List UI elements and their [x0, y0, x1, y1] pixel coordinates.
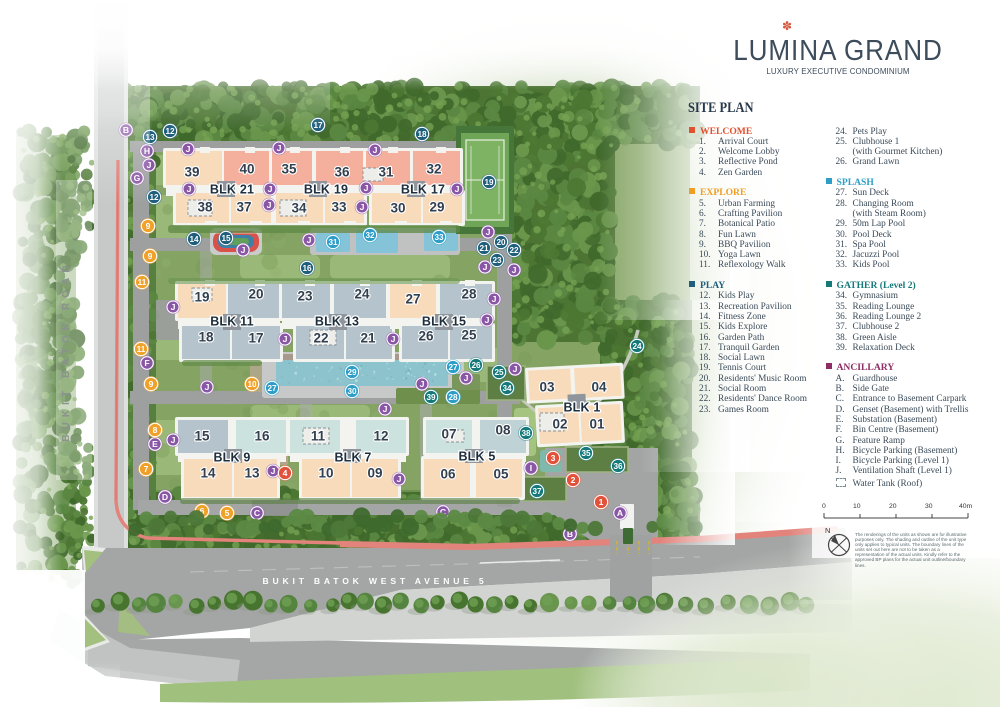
svg-text:23: 23	[492, 256, 502, 265]
svg-text:BLK 17: BLK 17	[401, 183, 445, 197]
svg-text:39: 39	[426, 393, 436, 402]
svg-text:BLK 13: BLK 13	[315, 315, 359, 329]
svg-text:J: J	[271, 466, 276, 476]
svg-text:40: 40	[239, 162, 254, 177]
svg-text:J: J	[186, 144, 191, 154]
svg-text:2: 2	[571, 475, 576, 485]
svg-text:J: J	[268, 184, 273, 194]
svg-text:23: 23	[297, 289, 313, 304]
svg-text:J: J	[397, 474, 402, 484]
svg-text:BLK 7: BLK 7	[334, 451, 371, 465]
svg-text:17: 17	[248, 331, 263, 346]
svg-text:5: 5	[225, 508, 230, 518]
svg-text:09: 09	[367, 466, 382, 481]
svg-text:16: 16	[302, 264, 312, 273]
svg-text:BLK 9: BLK 9	[213, 451, 250, 465]
svg-text:BLK 1: BLK 1	[563, 401, 600, 415]
svg-text:35: 35	[581, 449, 591, 458]
svg-text:08: 08	[495, 423, 511, 438]
svg-text:D: D	[162, 492, 168, 502]
svg-text:30: 30	[390, 201, 405, 216]
svg-text:30: 30	[347, 387, 357, 396]
svg-text:J: J	[307, 235, 312, 245]
svg-text:27: 27	[267, 384, 277, 393]
svg-text:J: J	[364, 183, 369, 193]
svg-text:BLK 21: BLK 21	[210, 183, 254, 197]
svg-text:14: 14	[189, 235, 199, 244]
svg-text:02: 02	[552, 417, 567, 432]
svg-text:33: 33	[434, 233, 444, 242]
svg-text:32: 32	[365, 231, 375, 240]
svg-text:3: 3	[551, 453, 556, 463]
svg-text:24: 24	[354, 287, 370, 302]
svg-text:21: 21	[360, 331, 376, 346]
svg-text:J: J	[420, 379, 425, 389]
svg-text:20: 20	[496, 238, 506, 247]
svg-text:19: 19	[194, 290, 209, 305]
svg-text:32: 32	[426, 162, 441, 177]
svg-text:11: 11	[311, 429, 326, 444]
svg-text:07: 07	[441, 427, 456, 442]
svg-text:05: 05	[493, 467, 509, 482]
svg-text:16: 16	[254, 429, 270, 444]
svg-text:22: 22	[313, 331, 328, 346]
svg-text:35: 35	[281, 162, 297, 177]
svg-text:BLK 5: BLK 5	[458, 450, 495, 464]
svg-text:J: J	[360, 202, 365, 212]
svg-text:15: 15	[194, 429, 210, 444]
svg-text:12: 12	[149, 193, 159, 202]
svg-text:J: J	[513, 364, 518, 374]
svg-text:J: J	[283, 334, 288, 344]
svg-text:E: E	[152, 439, 158, 449]
svg-text:J: J	[492, 294, 497, 304]
svg-text:27: 27	[405, 292, 420, 307]
svg-text:11: 11	[138, 278, 147, 287]
svg-text:18: 18	[417, 130, 427, 139]
svg-text:J: J	[171, 302, 176, 312]
svg-text:J: J	[512, 265, 517, 275]
svg-text:J: J	[383, 404, 388, 414]
svg-text:I: I	[530, 463, 532, 473]
svg-text:38: 38	[197, 200, 213, 215]
svg-text:F: F	[144, 358, 149, 368]
svg-text:BLK 11: BLK 11	[210, 315, 254, 329]
svg-text:7: 7	[144, 464, 149, 474]
svg-text:9: 9	[146, 221, 151, 231]
svg-text:19: 19	[484, 178, 494, 187]
svg-text:25: 25	[461, 328, 477, 343]
svg-text:9: 9	[149, 379, 154, 389]
svg-text:06: 06	[440, 467, 456, 482]
svg-text:36: 36	[334, 165, 350, 180]
svg-text:14: 14	[200, 466, 216, 481]
svg-text:1: 1	[599, 497, 604, 507]
svg-text:BUKIT BATOK WEST AVENUE 5: BUKIT BATOK WEST AVENUE 5	[262, 576, 487, 586]
svg-text:13: 13	[244, 466, 260, 481]
svg-text:J: J	[187, 184, 192, 194]
svg-text:J: J	[267, 200, 272, 210]
svg-text:04: 04	[591, 380, 607, 395]
svg-text:29: 29	[347, 368, 357, 377]
svg-text:8: 8	[153, 425, 158, 435]
svg-text:10: 10	[247, 380, 257, 389]
svg-text:29: 29	[429, 200, 444, 215]
svg-text:20: 20	[248, 287, 263, 302]
svg-text:27: 27	[448, 363, 458, 372]
svg-text:25: 25	[494, 368, 504, 377]
svg-text:J: J	[455, 184, 460, 194]
svg-text:J: J	[373, 145, 378, 155]
svg-text:22: 22	[509, 246, 519, 255]
svg-text:37: 37	[236, 200, 251, 215]
svg-text:J: J	[485, 315, 490, 325]
svg-text:11: 11	[137, 345, 146, 354]
svg-text:J: J	[483, 262, 488, 272]
svg-text:J: J	[241, 245, 246, 255]
svg-text:26: 26	[471, 361, 481, 370]
svg-text:33: 33	[331, 200, 347, 215]
svg-text:A: A	[617, 508, 623, 518]
svg-text:4: 4	[283, 468, 288, 478]
svg-text:34: 34	[291, 201, 307, 216]
svg-text:39: 39	[184, 165, 199, 180]
svg-text:38: 38	[521, 429, 531, 438]
svg-text:10: 10	[318, 466, 333, 481]
svg-text:J: J	[464, 373, 469, 383]
svg-text:C: C	[254, 508, 260, 518]
svg-text:9: 9	[148, 251, 153, 261]
svg-text:BLK 19: BLK 19	[304, 183, 348, 197]
svg-text:31: 31	[378, 165, 394, 180]
svg-text:34: 34	[502, 384, 512, 393]
svg-text:18: 18	[198, 330, 214, 345]
svg-text:12: 12	[373, 429, 388, 444]
svg-text:28: 28	[448, 393, 458, 402]
svg-text:BUKIT BATOK ROAD: BUKIT BATOK ROAD	[61, 260, 72, 441]
svg-text:J: J	[171, 435, 176, 445]
svg-text:03: 03	[539, 380, 555, 395]
svg-text:28: 28	[461, 287, 477, 302]
svg-text:36: 36	[613, 462, 623, 471]
svg-text:15: 15	[221, 234, 231, 243]
svg-text:01: 01	[589, 417, 605, 432]
svg-text:N: N	[825, 526, 830, 535]
svg-text:J: J	[391, 334, 396, 344]
svg-text:BLK 15: BLK 15	[422, 315, 466, 329]
svg-text:31: 31	[328, 238, 338, 247]
svg-text:J: J	[486, 227, 491, 237]
svg-text:26: 26	[418, 329, 434, 344]
svg-text:21: 21	[479, 244, 489, 253]
svg-text:J: J	[277, 143, 282, 153]
svg-text:37: 37	[532, 487, 542, 496]
svg-text:J: J	[205, 382, 210, 392]
